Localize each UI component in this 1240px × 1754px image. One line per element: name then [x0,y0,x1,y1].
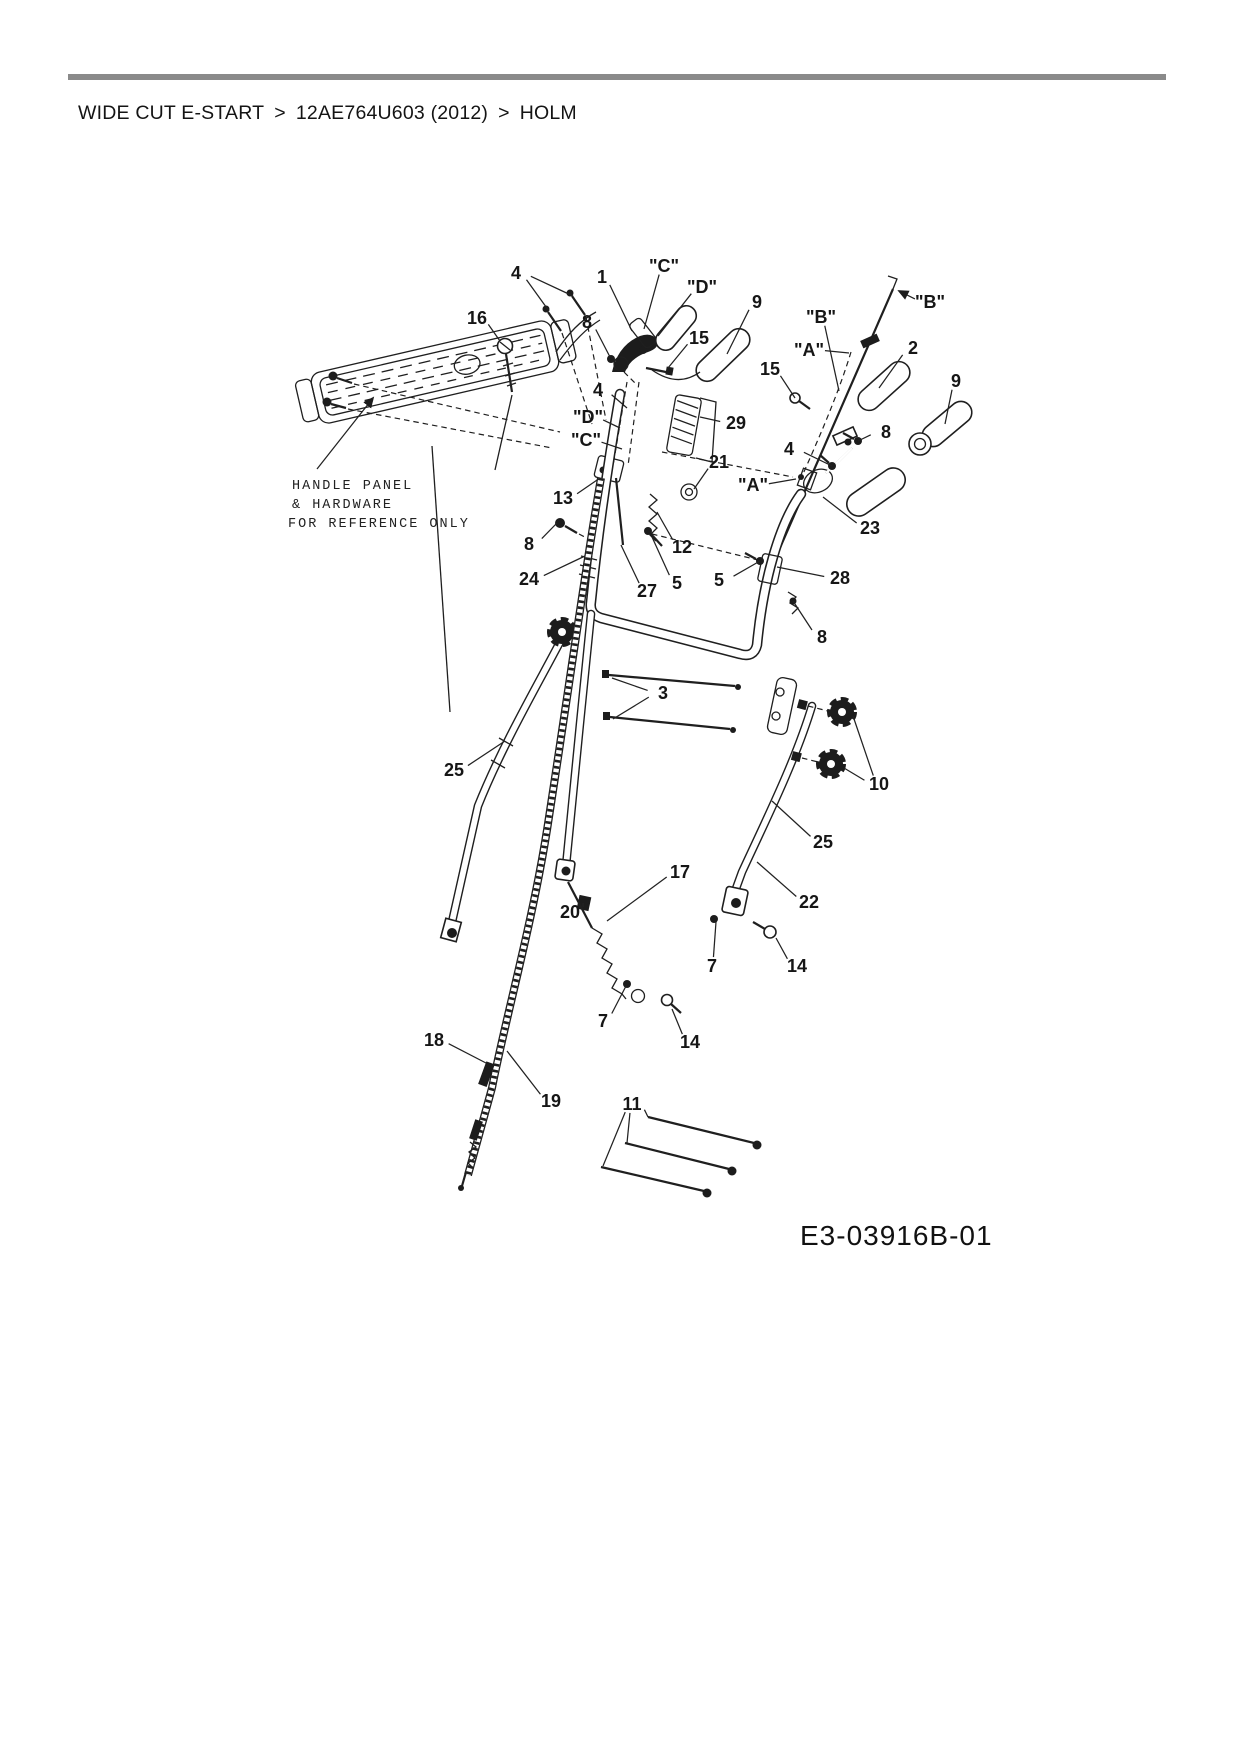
callout-leader [844,768,864,780]
callout-label: 17 [670,862,690,882]
callout-label: 9 [752,292,762,312]
callout-leader [793,601,812,630]
callout-label: 29 [726,413,746,433]
callout-leader [694,469,708,489]
callout-label: 14 [680,1032,700,1052]
callout-label: "D" [687,277,717,297]
callout-label: "B" [806,307,836,327]
callout-label: 14 [787,956,807,976]
callout-leader [603,1112,625,1166]
callout-leader [526,280,549,311]
callout-leader [596,330,610,357]
callout-leader [621,545,639,583]
catalog-page: WIDE CUT E-START>12AE764U603 (2012)>HOLM [0,0,1240,1754]
callout-leader [777,567,824,576]
callout-leader [612,986,626,1013]
callout-label: 21 [709,452,729,472]
lower-handle-left-tube [441,642,560,942]
callout-label: 9 [951,371,961,391]
callout-label: 27 [637,581,657,601]
drawing-id: E3-03916B-01 [800,1220,993,1251]
callout-leader [610,285,632,331]
callout-label: 12 [672,537,692,557]
callout-leader [607,877,667,921]
callout-label: 1 [597,267,607,287]
callout-label: 7 [707,956,717,976]
callout-leader [627,1113,630,1143]
callout-leader [657,512,673,540]
callout-leader [772,801,811,836]
callout-leader [734,561,760,576]
reference-note-line-3: FOR REFERENCE ONLY [288,517,470,532]
starter-rod-and-grips [762,276,976,589]
reference-note-line-2: & HARDWARE [292,498,393,513]
callout-leader [757,862,796,897]
callout-label: 20 [560,902,580,922]
callout-leader [644,1110,648,1117]
callout-label: 4 [784,439,794,459]
lower-handle-right-tube [710,706,812,938]
callout-label: 22 [799,892,819,912]
callout-leader [780,376,795,398]
callout-leader [825,351,849,353]
callout-leader [700,417,720,422]
callout-leader [544,556,585,576]
callout-leader [652,537,669,575]
callout-leader [644,275,659,329]
callout-label: 28 [830,568,850,588]
callout-leader [531,276,573,296]
callout-leader [853,716,873,776]
callout-leader [804,452,832,466]
callout-label: "D" [573,407,603,427]
callout-leader [613,697,649,719]
callout-label: 13 [553,488,573,508]
callout-label: 4 [511,263,521,283]
callout-label: 2 [908,338,918,358]
callout-label: 11 [622,1094,641,1114]
callout-leader [713,922,716,957]
callout-leader [899,291,915,299]
callout-label: 15 [760,359,780,379]
callout-label: 8 [817,627,827,647]
callout-leader [542,523,557,539]
callout-leader [825,326,839,391]
callout-leader [776,938,787,959]
callout-label: 16 [467,308,487,328]
callout-label: 23 [860,518,880,538]
callout-label: 25 [813,832,833,852]
callout-label: 5 [714,570,724,590]
callout-leader [612,678,648,690]
callout-label: "A" [738,475,768,495]
callout-label: 8 [582,312,592,332]
grip-cylinder-2 [854,357,915,415]
callout-leader [449,1044,486,1063]
callout-leader [769,479,796,484]
callout-label: 18 [424,1030,444,1050]
callout-label: 4 [593,380,603,400]
bolt-set-11 [601,1117,762,1198]
callout-label: 15 [689,328,709,348]
callout-label: "C" [649,256,679,276]
callout-label: 3 [658,683,668,703]
callout-label: 10 [869,774,889,794]
callout-label: 8 [881,422,891,442]
callout-label: 7 [598,1011,608,1031]
callout-label: "A" [794,340,824,360]
parts-diagram-svg: HANDLE PANEL & HARDWARE FOR REFERENCE ON… [0,0,1240,1754]
callout-label: 8 [524,534,534,554]
callout-label: 24 [519,569,539,589]
grip-cylinder-lower [842,463,910,521]
callout-label: 5 [672,573,682,593]
callout-label: 19 [541,1091,561,1111]
reference-note: HANDLE PANEL & HARDWARE FOR REFERENCE ON… [288,398,470,532]
callout-label: "C" [571,430,601,450]
reference-note-line-1: HANDLE PANEL [292,479,413,494]
callout-leader [507,1051,540,1094]
callout-label: "B" [915,292,945,312]
callout-label: 25 [444,760,464,780]
